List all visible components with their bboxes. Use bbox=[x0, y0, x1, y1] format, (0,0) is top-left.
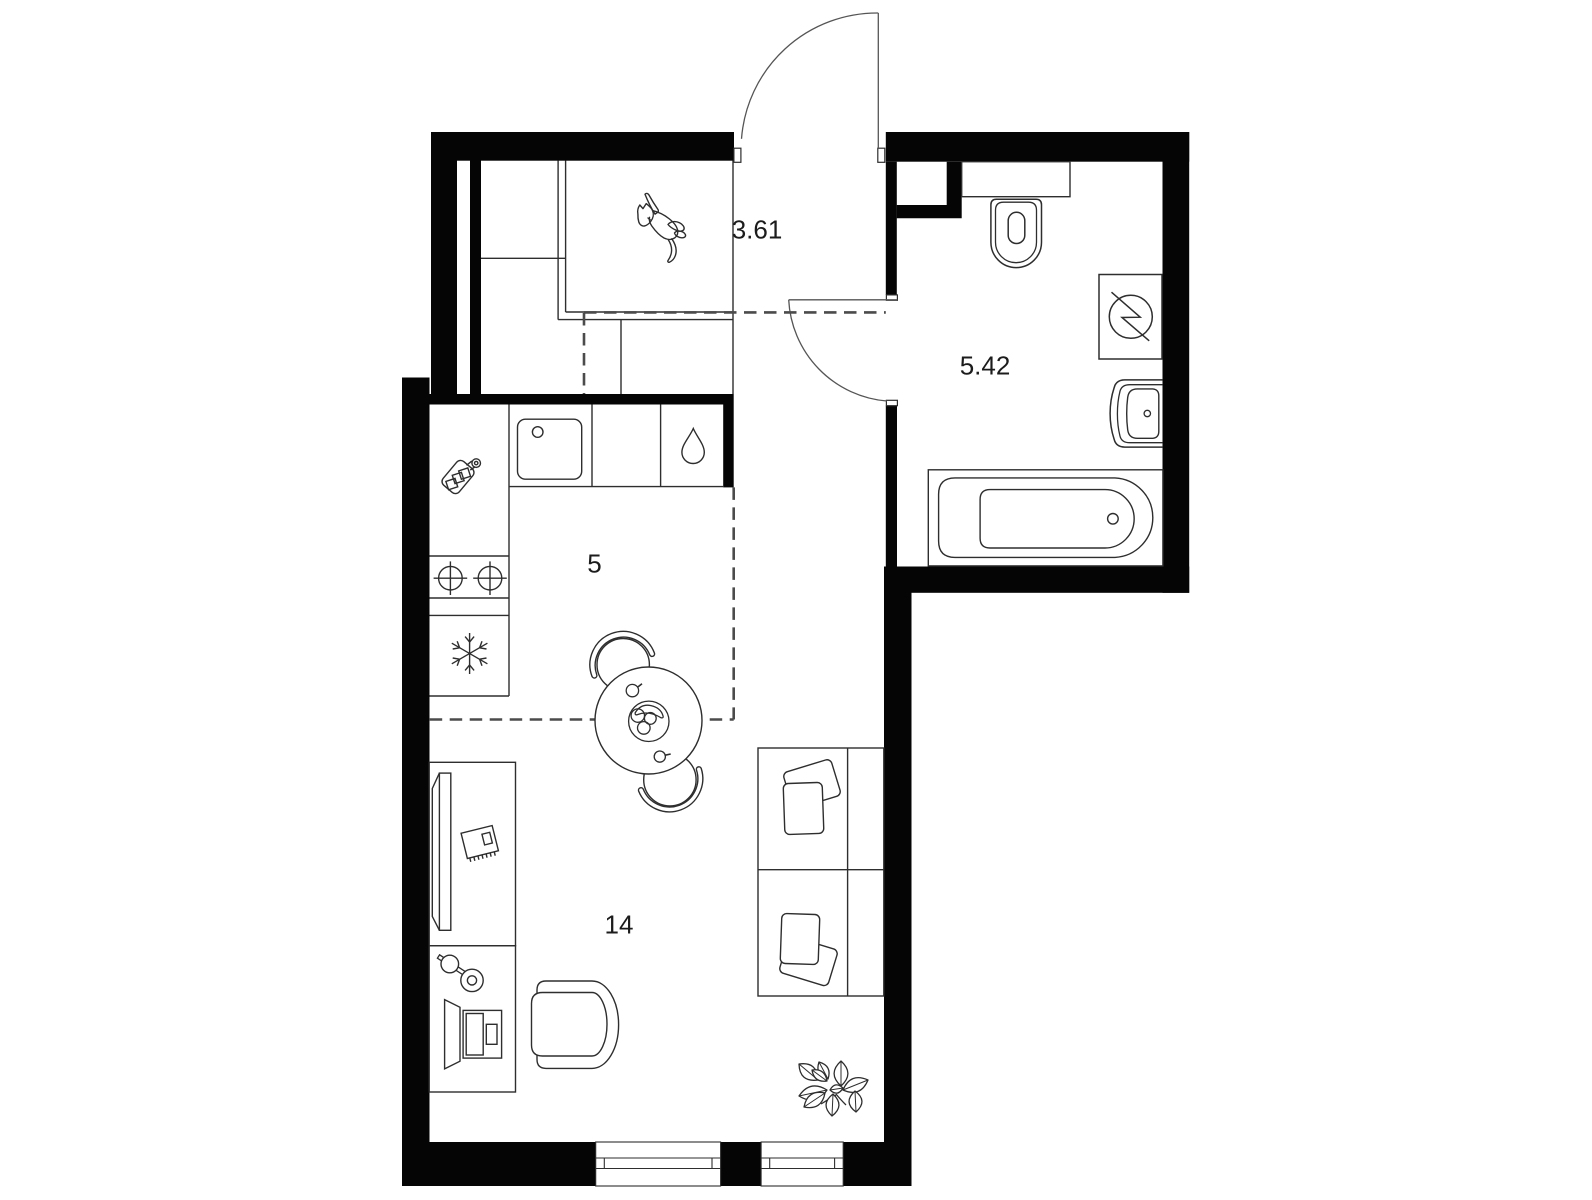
svg-text:14: 14 bbox=[605, 910, 634, 940]
svg-text:5: 5 bbox=[587, 549, 601, 579]
svg-text:3.61: 3.61 bbox=[732, 215, 783, 245]
svg-text:5.42: 5.42 bbox=[960, 351, 1011, 381]
